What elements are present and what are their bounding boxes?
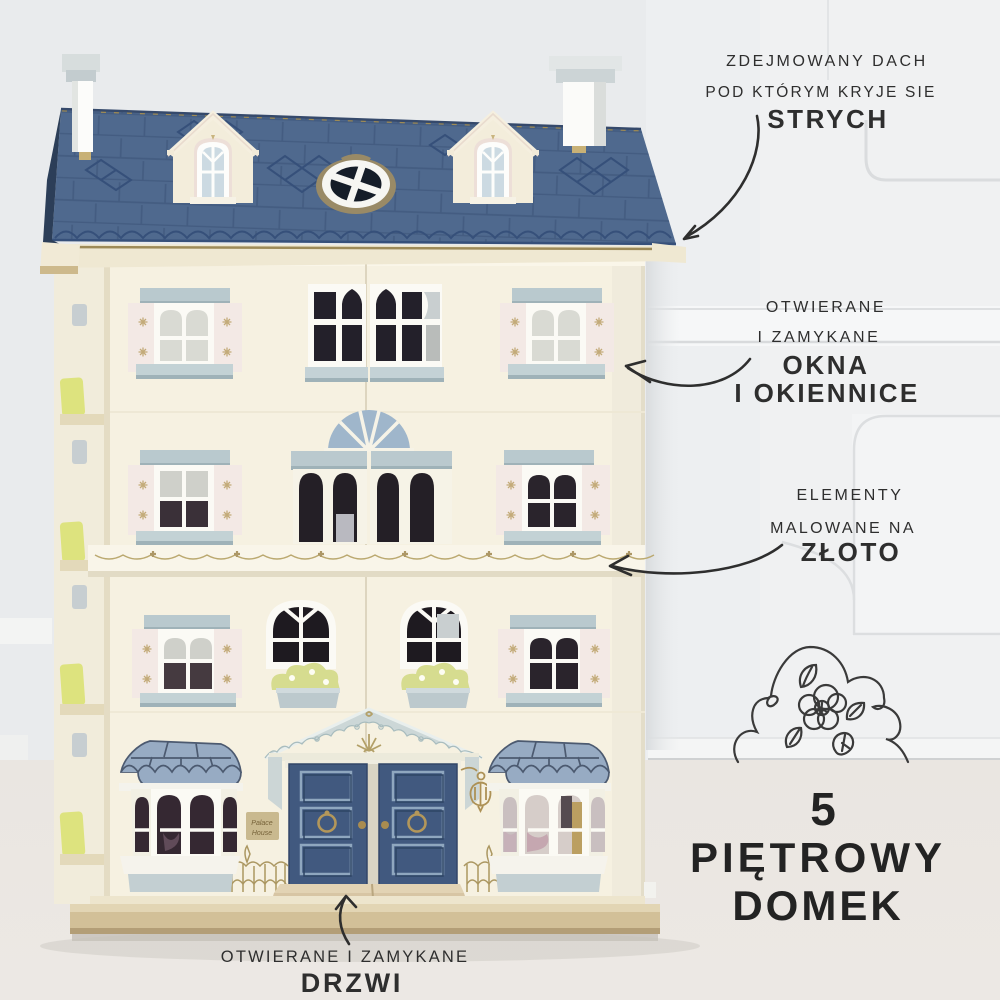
svg-text:House: House xyxy=(252,830,272,837)
svg-text:OKNA: OKNA xyxy=(783,350,870,380)
svg-text:OTWIERANE: OTWIERANE xyxy=(766,299,886,316)
svg-text:ZDEJMOWANY DACH: ZDEJMOWANY DACH xyxy=(726,53,928,70)
svg-text:ZŁOTO: ZŁOTO xyxy=(801,537,902,567)
svg-text:I ZAMYKANE: I ZAMYKANE xyxy=(758,329,881,346)
svg-text:DOMEK: DOMEK xyxy=(732,882,903,929)
svg-text:PIĘTROWY: PIĘTROWY xyxy=(690,834,946,881)
svg-text:Palace: Palace xyxy=(251,820,273,827)
svg-text:ELEMENTY: ELEMENTY xyxy=(796,487,903,504)
svg-text:DRZWI: DRZWI xyxy=(301,968,403,998)
svg-text:I OKIENNICE: I OKIENNICE xyxy=(734,378,919,408)
svg-text:STRYCH: STRYCH xyxy=(767,104,889,134)
svg-text:POD KTÓRYM KRYJE SIE: POD KTÓRYM KRYJE SIE xyxy=(705,84,936,101)
svg-text:OTWIERANE I ZAMYKANE: OTWIERANE I ZAMYKANE xyxy=(221,948,469,966)
svg-text:MALOWANE NA: MALOWANE NA xyxy=(770,520,916,537)
svg-text:5: 5 xyxy=(810,783,838,835)
